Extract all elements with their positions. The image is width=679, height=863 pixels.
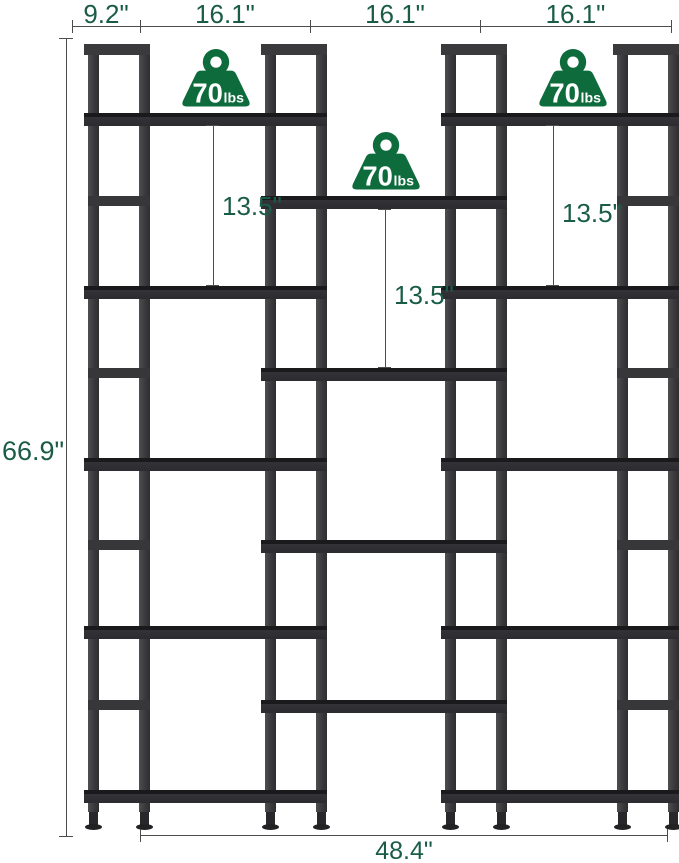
height-dimension-line xyxy=(66,38,67,837)
frame-top-beam xyxy=(613,44,679,55)
weight-capacity-badge-left: 70 lbs xyxy=(180,48,252,114)
weight-capacity-badge-right: 70 lbs xyxy=(537,48,609,114)
column-width-label: 16.1" xyxy=(140,1,310,27)
leveling-foot-base xyxy=(85,824,102,830)
weight-icon: 70 lbs xyxy=(180,48,252,114)
spacing-line xyxy=(385,209,386,368)
shelf xyxy=(261,540,507,553)
spacing-line xyxy=(213,125,214,286)
frame-rung xyxy=(88,700,150,710)
dimension-tick xyxy=(546,285,559,286)
shelf xyxy=(84,790,327,803)
shelf xyxy=(441,458,679,471)
weight-unit: lbs xyxy=(224,90,245,106)
frame-rung xyxy=(617,700,679,710)
leveling-foot-base xyxy=(493,824,510,830)
shelf-spacing-label-right: 13.5" xyxy=(562,200,622,226)
leveling-foot-base xyxy=(136,824,153,830)
dimension-tick xyxy=(378,209,391,210)
frame-rail xyxy=(617,44,628,812)
shelf xyxy=(261,700,507,713)
weight-icon: 70 lbs xyxy=(350,131,422,197)
dimension-tick xyxy=(206,285,219,286)
dimension-tick xyxy=(546,125,559,126)
frame-rail xyxy=(88,44,99,812)
shelf xyxy=(441,626,679,639)
frame-rung xyxy=(617,540,679,550)
leveling-foot-base xyxy=(313,824,330,830)
frame-rail xyxy=(265,44,276,812)
weight-icon: 70 lbs xyxy=(537,48,609,114)
weight-unit: lbs xyxy=(581,90,602,106)
width-dimension-line xyxy=(140,835,668,836)
frame-rung xyxy=(617,368,679,378)
frame-rung xyxy=(617,196,679,206)
frame-top-beam xyxy=(261,44,327,55)
frame-rung xyxy=(88,368,150,378)
weight-capacity-badge-middle: 70 lbs xyxy=(350,131,422,197)
weight-value: 70 xyxy=(362,161,392,192)
shelf xyxy=(84,626,327,639)
dimension-tick xyxy=(59,38,73,39)
frame-rung xyxy=(88,540,150,550)
column-width-label: 16.1" xyxy=(310,1,480,27)
dimension-tick xyxy=(59,836,73,837)
weight-value: 70 xyxy=(549,78,579,109)
leveling-foot-base xyxy=(262,824,279,830)
frame-top-beam xyxy=(441,44,507,55)
frame-rung xyxy=(88,196,150,206)
height-dimension-label: 66.9" xyxy=(2,438,64,465)
frame-rail xyxy=(668,44,679,812)
weight-unit: lbs xyxy=(394,173,415,189)
shelf-spacing-label-left: 13.5" xyxy=(222,193,282,219)
shelf xyxy=(84,458,327,471)
shelf xyxy=(441,113,679,126)
shelf xyxy=(441,286,679,299)
dimension-tick xyxy=(671,20,672,33)
frame-rail xyxy=(316,44,327,812)
shelf xyxy=(441,790,679,803)
frame-rail xyxy=(445,44,456,812)
leveling-foot-base xyxy=(614,824,631,830)
column-width-label: 16.1" xyxy=(480,1,671,27)
leveling-foot-base xyxy=(442,824,459,830)
frame-top-beam xyxy=(84,44,150,55)
shelf xyxy=(261,368,507,381)
depth-dimension-label: 9.2" xyxy=(68,1,144,27)
dimension-tick xyxy=(378,367,391,368)
width-dimension-label: 48.4" xyxy=(140,839,668,863)
frame-rail xyxy=(139,44,150,812)
shelf xyxy=(84,286,327,299)
dimension-tick xyxy=(206,125,219,126)
shelf xyxy=(261,196,507,209)
weight-value: 70 xyxy=(192,78,222,109)
spacing-line xyxy=(553,125,554,286)
shelf-spacing-label-middle: 13.5" xyxy=(394,282,454,308)
product-dimension-diagram: 9.2" 16.1" 16.1" 16.1" 66.9" 13.5" 13.5"… xyxy=(0,0,679,863)
frame-rail xyxy=(496,44,507,812)
